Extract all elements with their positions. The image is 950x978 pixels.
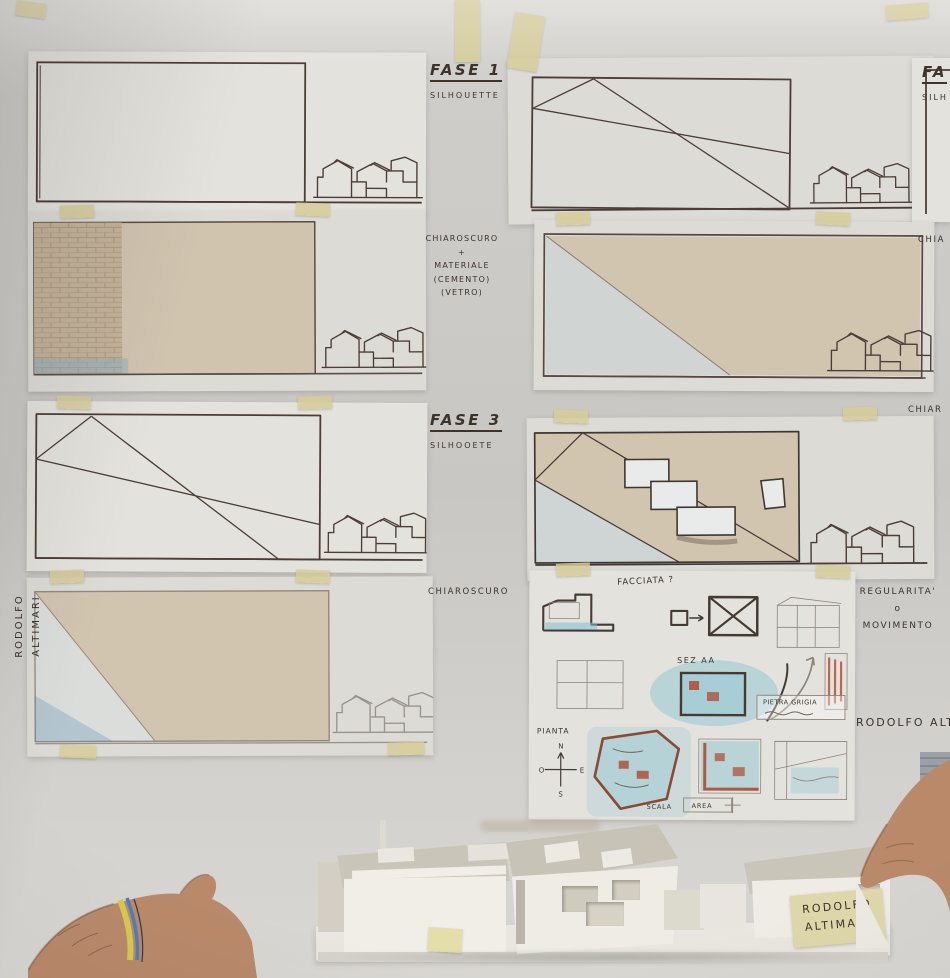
fase2-title: FA: [922, 63, 947, 84]
author-vertical-line2: ALTIMARI: [28, 551, 45, 701]
left-hand: [28, 866, 260, 978]
materiale-line5: (VETRO): [416, 286, 508, 300]
context-houses-sketch: [322, 327, 426, 367]
sheet-fase3-silhouette: [27, 401, 428, 573]
model-left-block-front: [344, 876, 506, 952]
model-front-slit: [516, 880, 525, 944]
tape-strip: [15, 0, 47, 19]
drawing-plan-studies: PIETRA GRIGIA N O E S FACCIATA ? SEZ AA …: [529, 570, 856, 820]
tape-strip: [388, 741, 424, 755]
wall-smudge: [480, 820, 600, 832]
context-houses-sketch: [325, 513, 428, 553]
right-hand-shape: [860, 760, 950, 912]
tape-strip: [885, 2, 928, 21]
compass-e: E: [580, 767, 584, 775]
plan-2-wash: [701, 741, 759, 791]
compass-s: S: [558, 791, 563, 799]
tape-strip: [556, 211, 590, 225]
sheet-chiaroscuro-final: [27, 576, 434, 756]
label-author-vertical: RODOLFO ALTIMARI: [11, 551, 47, 701]
brick-texture: [34, 222, 123, 374]
context-houses-sketch: [314, 157, 423, 198]
label-fase1: FASE 1 SILHOUETTE: [430, 60, 502, 100]
label-fase2-cut: FA SILH: [922, 62, 948, 102]
tape-strip: [556, 562, 590, 576]
tape-strip: [60, 744, 96, 758]
model-shadow: [330, 950, 886, 964]
model-roof-box: [378, 847, 415, 863]
fase1-title: FASE 1: [430, 61, 502, 82]
tape-strip: [296, 202, 330, 216]
label-chia-cut: CHIA: [918, 234, 945, 248]
context-houses-sketch-faint: [333, 692, 433, 732]
sheet-chiaroscuro-materiale: [28, 211, 427, 391]
model-step-opening: [586, 902, 624, 926]
water-blue-strip: [34, 358, 128, 374]
label-chiaroscuro-materiale: CHIAROSCURO + MATERIALE (CEMENTO) (VETRO…: [416, 232, 508, 300]
compass-o: O: [539, 766, 545, 774]
pianta-label: PIANTA: [537, 726, 570, 735]
model-step-opening: [612, 880, 640, 900]
label-regularita-movimento: REGULARITA' o MOVIMENTO: [850, 584, 946, 635]
tape-strip: [298, 395, 332, 409]
tape-strip: [60, 204, 94, 218]
model-mid-cube: [664, 890, 704, 930]
fase2-subtitle: SILH: [922, 93, 948, 102]
sheet-plan-studies: PIETRA GRIGIA N O E S FACCIATA ? SEZ AA …: [529, 570, 856, 820]
right-hand: [856, 752, 950, 948]
tape-strip: [816, 564, 850, 578]
photo-scene: PIETRA GRIGIA N O E S FACCIATA ? SEZ AA …: [0, 0, 950, 978]
pietra-grigia-note: PIETRA GRIGIA: [757, 695, 845, 719]
label-chiaroscuro: CHIAROSCURO: [428, 586, 509, 600]
materiale-line4: (CEMENTO): [416, 273, 508, 287]
left-hand-shape: [28, 875, 257, 978]
tape-strip: [816, 211, 851, 226]
fase3-title: FASE 3: [430, 411, 502, 432]
drawing-chiaroscuro-fase3: [527, 416, 935, 581]
compass-n: N: [558, 743, 563, 751]
regularita-line2: o: [850, 601, 946, 618]
drawing-fase2-silhouette: [507, 56, 934, 225]
tape-strip: [296, 569, 330, 583]
perspective-sketch: [775, 741, 847, 799]
fase1-subtitle: SILHOUETTE: [430, 91, 502, 100]
drawing-fase1-silhouette: [28, 51, 427, 214]
fase3-subtitle: SILHOOETE: [430, 441, 502, 450]
context-houses-sketch: [807, 521, 919, 563]
sheet-fase1-silhouette: [28, 51, 427, 214]
model-base-corner: [856, 880, 890, 948]
scala-label: SCALA: [647, 803, 672, 811]
context-houses-sketch: [810, 163, 914, 202]
model-roof-box: [468, 843, 509, 861]
drawing-chiaroscuro-final: [27, 576, 434, 756]
area-label: AREA: [692, 802, 713, 810]
label-fase3: FASE 3 SILHOOETE: [430, 410, 502, 450]
mini-compass: [725, 797, 741, 813]
drawing-chiaroscuro-fase2: [534, 220, 935, 392]
drawing-chiaroscuro-materiale: [28, 211, 427, 391]
regularita-line1: REGULARITA': [850, 584, 946, 601]
label-author-right-cut: RODOLFO ALTI: [856, 716, 950, 729]
author-vertical-line1: RODOLFO: [11, 551, 28, 701]
model-mid-cube: [700, 884, 746, 928]
materiale-line2: +: [416, 246, 508, 260]
compass-rose: [545, 752, 577, 786]
sheet-fase2-silhouette: [507, 56, 934, 225]
tape-strip: [554, 409, 588, 423]
sheet-chiaroscuro-fase3: [527, 416, 935, 581]
facciata-label: FACCIATA ?: [617, 575, 674, 588]
materiale-line1: CHIAROSCURO: [416, 232, 508, 246]
sheet-chiaroscuro-fase2: [534, 220, 935, 392]
tape-strip: [50, 569, 84, 583]
regularita-line3: MOVIMENTO: [850, 618, 946, 635]
tape-strip: [57, 395, 91, 409]
materiale-line3: MATERIALE: [416, 259, 508, 273]
tape-strip: [843, 406, 877, 420]
drawing-fase3-silhouette: [27, 401, 428, 573]
tape-strip: [455, 0, 480, 62]
pietra-grigia-text: PIETRA GRIGIA: [763, 698, 817, 706]
sez-aa-label: SEZ AA: [677, 656, 715, 665]
label-chiar-cut: CHIAR: [908, 404, 943, 418]
